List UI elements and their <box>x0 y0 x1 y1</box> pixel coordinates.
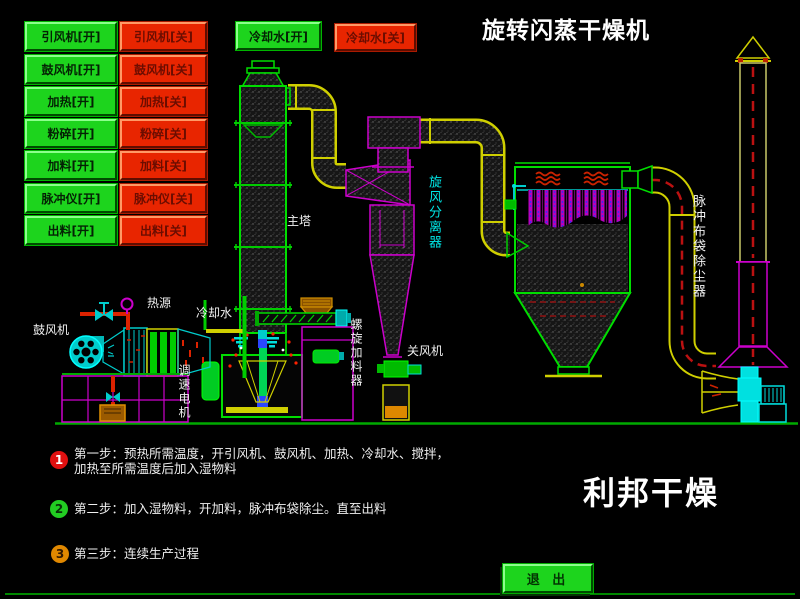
step2-badge: 2 <box>50 500 68 518</box>
discharge-on-button[interactable]: 出料[开] <box>25 216 117 245</box>
discharge-off-button[interactable]: 出料[关] <box>120 216 207 245</box>
company-brand: 利邦干燥 <box>583 468 719 514</box>
cooling-off-button[interactable]: 冷却水[关] <box>335 24 416 51</box>
step1-text: 第一步：预热所需温度，开引风机、鼓风机、加热、冷却水、搅拌， 加热至所需温度后加… <box>74 446 466 476</box>
fan-on-button[interactable]: 引风机[开] <box>25 22 117 51</box>
blower-on-button[interactable]: 鼓风机[开] <box>25 55 117 84</box>
step3-text: 第三步：连续生产过程 <box>74 546 199 561</box>
label-cyclone: 旋风分离器 <box>426 175 440 250</box>
exit-button[interactable]: 退 出 <box>503 564 593 593</box>
heat-exchanger <box>103 328 147 376</box>
crush-off-button[interactable]: 粉碎[关] <box>120 119 207 148</box>
feed-off-button[interactable]: 加料[关] <box>120 151 207 180</box>
heat-on-button[interactable]: 加热[开] <box>25 87 117 116</box>
heat-source <box>147 329 178 376</box>
step1-line2: 加热至所需温度后加入湿物料 <box>74 461 466 476</box>
label-screw-feeder: 螺旋加料器 <box>349 318 363 388</box>
label-bag-filter: 脉冲布袋除尘器 <box>690 194 704 299</box>
support-frame-left <box>62 374 188 422</box>
top-feed-pipe <box>80 299 133 331</box>
label-speed-motor: 调速电机 <box>177 364 191 420</box>
cooling-on-button[interactable]: 冷却水[开] <box>236 22 321 50</box>
label-rotary-valve: 关风机 <box>407 342 443 359</box>
hmi-screen: 旋转闪蒸干燥机 引风机[开] 鼓风机[开] 加热[开] 粉碎[开] 加料[开] … <box>0 0 800 599</box>
rotary-valve <box>377 361 421 420</box>
exhaust-fan <box>702 367 786 422</box>
step2-text: 第二步：加入湿物料，开加料，脉冲布袋除尘。直至出料 <box>74 501 387 516</box>
label-heat-source: 热源 <box>147 294 171 311</box>
chimney-stack <box>719 37 787 367</box>
fan-off-button[interactable]: 引风机[关] <box>120 22 207 51</box>
label-cooling-water: 冷却水 <box>196 304 232 321</box>
pipe-tower-to-cyclone <box>288 84 346 176</box>
bag-filter <box>505 163 652 376</box>
pulse-on-button[interactable]: 脉冲仪[开] <box>25 184 117 213</box>
label-main-tower: 主塔 <box>287 212 311 229</box>
step1-line1: 第一步：预热所需温度，开引风机、鼓风机、加热、冷却水、搅拌， <box>74 446 466 461</box>
heat-off-button[interactable]: 加热[关] <box>120 87 207 116</box>
step3-badge: 3 <box>51 545 69 563</box>
crush-on-button[interactable]: 粉碎[开] <box>25 119 117 148</box>
pulse-off-button[interactable]: 脉冲仪[关] <box>120 184 207 213</box>
blower-off-button[interactable]: 鼓风机[关] <box>120 55 207 84</box>
page-title: 旋转闪蒸干燥机 <box>482 11 650 45</box>
step1-badge: 1 <box>50 451 68 469</box>
pipe-filter-to-fan <box>651 180 716 366</box>
label-blower: 鼓风机 <box>33 321 69 338</box>
blower <box>70 336 104 368</box>
feed-on-button[interactable]: 加料[开] <box>25 151 117 180</box>
